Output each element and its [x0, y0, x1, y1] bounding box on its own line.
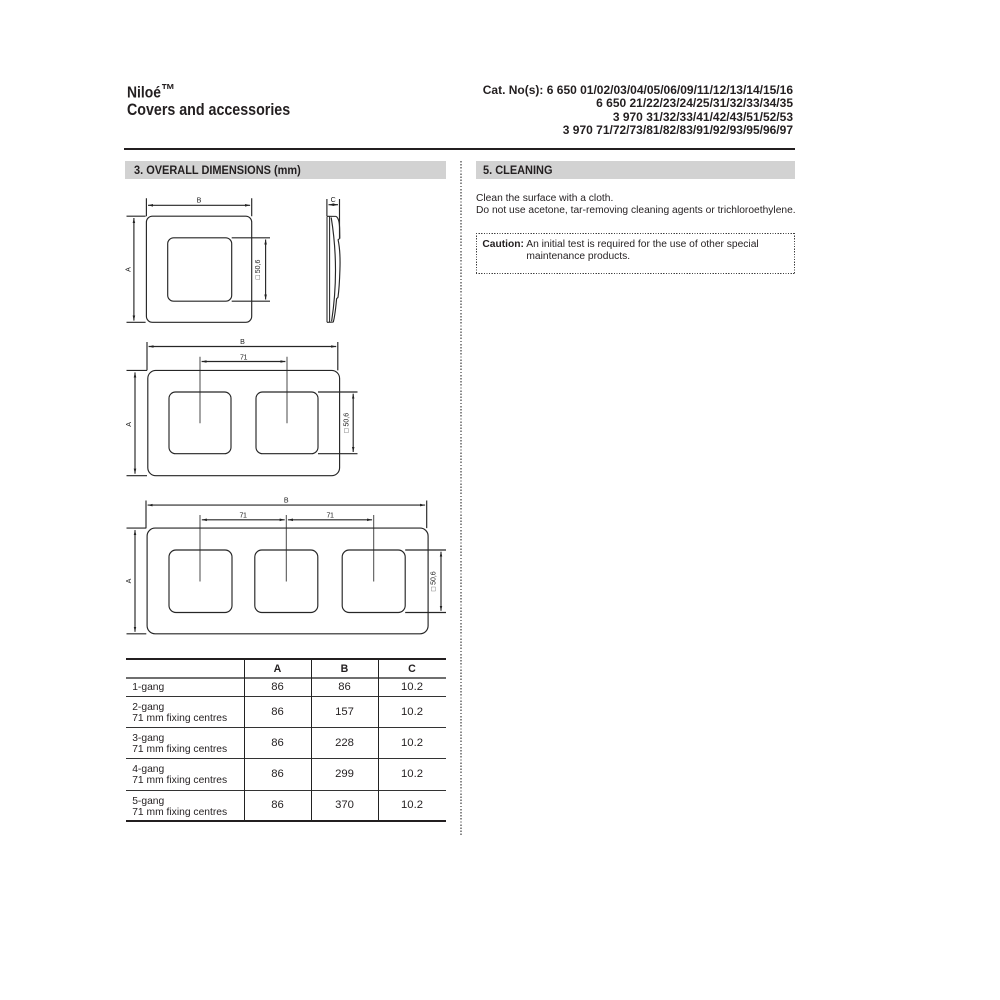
- svg-text:B: B: [284, 496, 289, 504]
- svg-text:A: A: [125, 422, 133, 427]
- svg-text:A: A: [124, 267, 132, 272]
- svg-text:71: 71: [239, 511, 247, 519]
- svg-text:B: B: [240, 338, 245, 346]
- svg-text:□ 50,6: □ 50,6: [344, 413, 351, 433]
- svg-text:□ 50,6: □ 50,6: [430, 571, 437, 591]
- svg-text:□ 50,6: □ 50,6: [255, 259, 262, 279]
- svg-text:B: B: [197, 197, 202, 205]
- svg-text:71: 71: [240, 353, 248, 361]
- svg-text:C: C: [331, 196, 336, 204]
- svg-text:A: A: [125, 578, 133, 583]
- svg-text:71: 71: [326, 511, 334, 519]
